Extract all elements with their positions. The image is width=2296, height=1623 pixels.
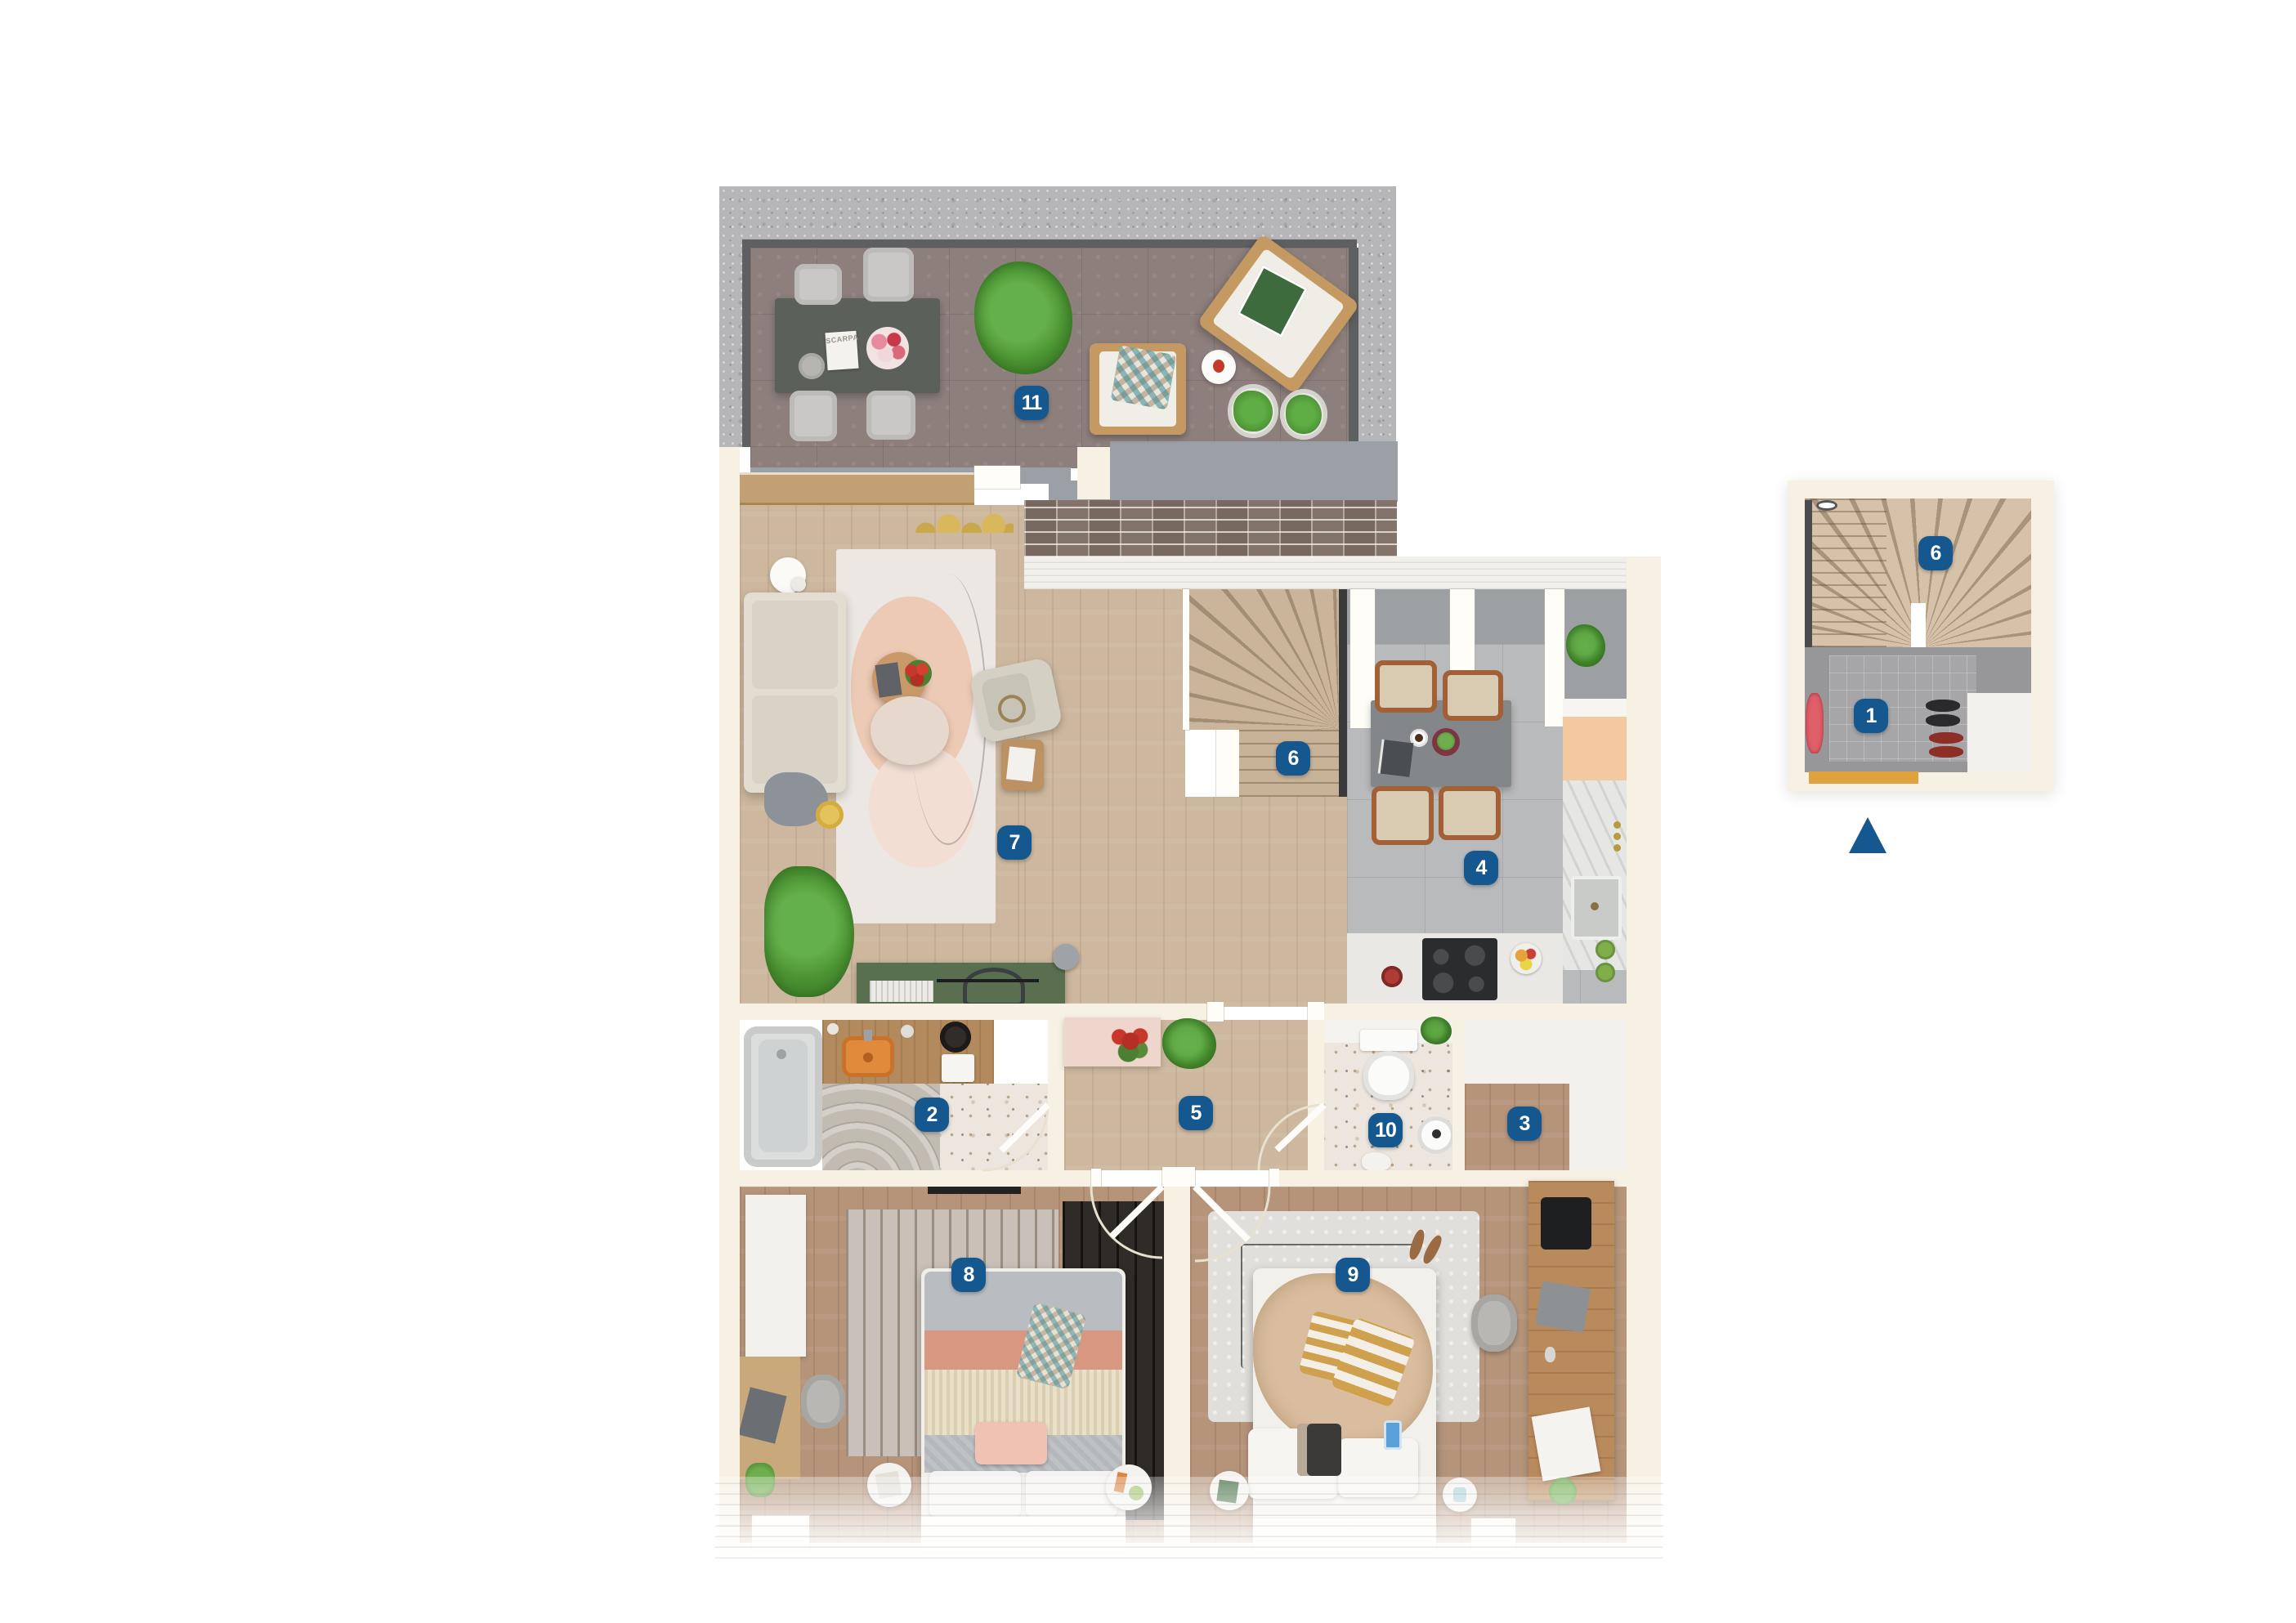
- terrace-wall-top: [719, 186, 1396, 244]
- bath-hat: [940, 1022, 971, 1053]
- room-badge-living: 7: [997, 825, 1032, 860]
- room-badge-storage: 3: [1507, 1107, 1542, 1141]
- stove-knob: [1613, 833, 1621, 840]
- floor-lamp: [1053, 944, 1079, 970]
- bathroom-wall: [1048, 1020, 1064, 1170]
- bedroom-cabinet: [745, 1195, 806, 1357]
- storage-closet: [1569, 1020, 1627, 1170]
- desk-chair: [801, 1375, 845, 1429]
- terrace-frame-left: [742, 248, 750, 447]
- magazine-title: SCARPA: [825, 330, 857, 346]
- terrace-frame-right: [1349, 248, 1358, 443]
- terrace-plant-pot: [1280, 389, 1327, 440]
- mouse: [1545, 1347, 1555, 1362]
- room-badge-stairs: 6: [1276, 741, 1310, 776]
- moka-pot: [1381, 966, 1403, 987]
- terrace-plate: [799, 353, 825, 379]
- inset-handrail: [1805, 500, 1812, 647]
- terrace-armchair-pillow: [1111, 345, 1177, 409]
- entrance-arrow: [1849, 817, 1886, 853]
- room-badge-wc: 10: [1368, 1113, 1403, 1147]
- cooktop: [1422, 938, 1497, 1000]
- tablet: [1541, 1197, 1591, 1250]
- door-jamb: [1308, 1002, 1324, 1022]
- roof-eave-overlay: [715, 1477, 1663, 1558]
- inset-shoes-red: [1929, 732, 1963, 744]
- terrace-magazine: SCARPA: [825, 331, 858, 371]
- bath-sink-orange: [842, 1036, 894, 1077]
- wall: [740, 1170, 1091, 1187]
- dining-chair: [1372, 786, 1434, 845]
- sofa: [744, 592, 846, 793]
- notebook: [1381, 740, 1414, 777]
- brick-band: [1024, 500, 1397, 557]
- desk-laptop: [1535, 1281, 1591, 1333]
- living-side-table: [770, 557, 806, 593]
- inset-doormat: [1809, 771, 1918, 784]
- bath-floor: [940, 1084, 1048, 1170]
- room-badge-bedroom-right: 9: [1336, 1258, 1370, 1292]
- counter-plant: [1596, 940, 1615, 959]
- inset-stair-notch: [1911, 603, 1926, 647]
- counter-plant: [1596, 963, 1615, 982]
- floor-plan-canvas: SCARPA: [0, 0, 2296, 1623]
- stairs-wall: [1216, 730, 1239, 797]
- door-jamb: [1091, 1169, 1101, 1188]
- living-plant: [764, 866, 854, 997]
- stair-handrail: [1339, 589, 1347, 797]
- wc-wall: [1308, 1020, 1324, 1170]
- pouf: [871, 696, 949, 765]
- outer-wall-right: [1627, 557, 1661, 1554]
- dining-chair: [1439, 786, 1501, 840]
- storage-wall: [1452, 1020, 1465, 1170]
- laptop: [875, 662, 902, 698]
- toilet-paper: [1362, 1152, 1391, 1172]
- counter-white-band: [1563, 699, 1627, 717]
- towels: [942, 1054, 974, 1082]
- terrace-chair: [863, 248, 914, 302]
- room-badge-kitchen: 4: [1464, 851, 1498, 885]
- wc-plant: [1421, 1017, 1452, 1044]
- dining-chair: [1443, 670, 1503, 721]
- wall-art-gold: [914, 500, 1014, 533]
- room-badge-terrace: 11: [1014, 386, 1049, 420]
- door-jamb: [1269, 1169, 1279, 1188]
- inset-rail-post: [1816, 500, 1837, 511]
- terrace-dining-table: [775, 298, 940, 393]
- hall-plant: [1162, 1018, 1216, 1069]
- inset-badge-entry: 1: [1854, 699, 1888, 733]
- kitchen-counter: [1563, 780, 1627, 970]
- terrace-chair: [794, 264, 842, 305]
- terrace-chair: [866, 391, 915, 440]
- inset-shoes-red: [1929, 746, 1963, 758]
- kitchen-cabinet-peach: [1563, 717, 1627, 780]
- winder-stairs: [1189, 589, 1339, 730]
- passage-floor: [1185, 797, 1347, 1007]
- inset-closet: [1967, 693, 2031, 772]
- wall-block: [1077, 447, 1110, 499]
- inset-badge-stairs: 6: [1918, 536, 1953, 570]
- room-badge-bathroom: 2: [915, 1098, 949, 1132]
- roof-band: [1024, 557, 1627, 589]
- toiletries: [901, 1025, 914, 1038]
- terrace-flowers: [866, 327, 909, 369]
- stove-knob: [1613, 844, 1621, 852]
- living-room-floor: [1024, 589, 1185, 1007]
- bedroom-tv: [928, 1187, 1021, 1194]
- kitchen-window-mullion: [1545, 589, 1564, 727]
- door-jamb: [1207, 1002, 1224, 1022]
- window-frame: [974, 466, 1020, 489]
- console-desk: [857, 963, 1065, 1007]
- toilet-bowl: [1363, 1051, 1414, 1100]
- wall: [1324, 1004, 1627, 1020]
- terrace-chair: [790, 391, 837, 441]
- wc-sink: [1417, 1116, 1455, 1154]
- kitchen-sink: [1571, 876, 1622, 940]
- inset-shoes-black: [1926, 714, 1960, 727]
- stove-knob: [1613, 821, 1621, 829]
- desk-magazine: [1532, 1406, 1601, 1481]
- flower-red: [902, 659, 932, 688]
- fruit-bowl: [1511, 943, 1542, 974]
- terrace-wall-right: [1358, 241, 1396, 443]
- stairs-divider: [1183, 589, 1189, 730]
- terrace-plant-pot: [1228, 384, 1278, 438]
- outer-wall-left: [719, 447, 740, 1554]
- sun-hat: [816, 801, 844, 829]
- terrace-side-table: [1202, 350, 1236, 384]
- bedroom-pouf: [1471, 1294, 1517, 1352]
- room-badge-hallway: 5: [1179, 1096, 1213, 1130]
- dining-chair: [1375, 660, 1437, 713]
- bathtub: [744, 1026, 822, 1167]
- toiletries: [827, 1023, 839, 1035]
- poinsettia: [1108, 1020, 1152, 1062]
- room-badge-bedroom-left: 8: [951, 1258, 986, 1292]
- inset-shoes-black: [1926, 700, 1960, 712]
- toilet: [1360, 1030, 1417, 1051]
- inset-straight-stairs: [1805, 499, 1886, 647]
- kitchen-plant: [1566, 624, 1605, 667]
- inset-jacket: [1806, 693, 1824, 753]
- table-plant: [1432, 728, 1460, 756]
- side-table-small: [1001, 740, 1044, 790]
